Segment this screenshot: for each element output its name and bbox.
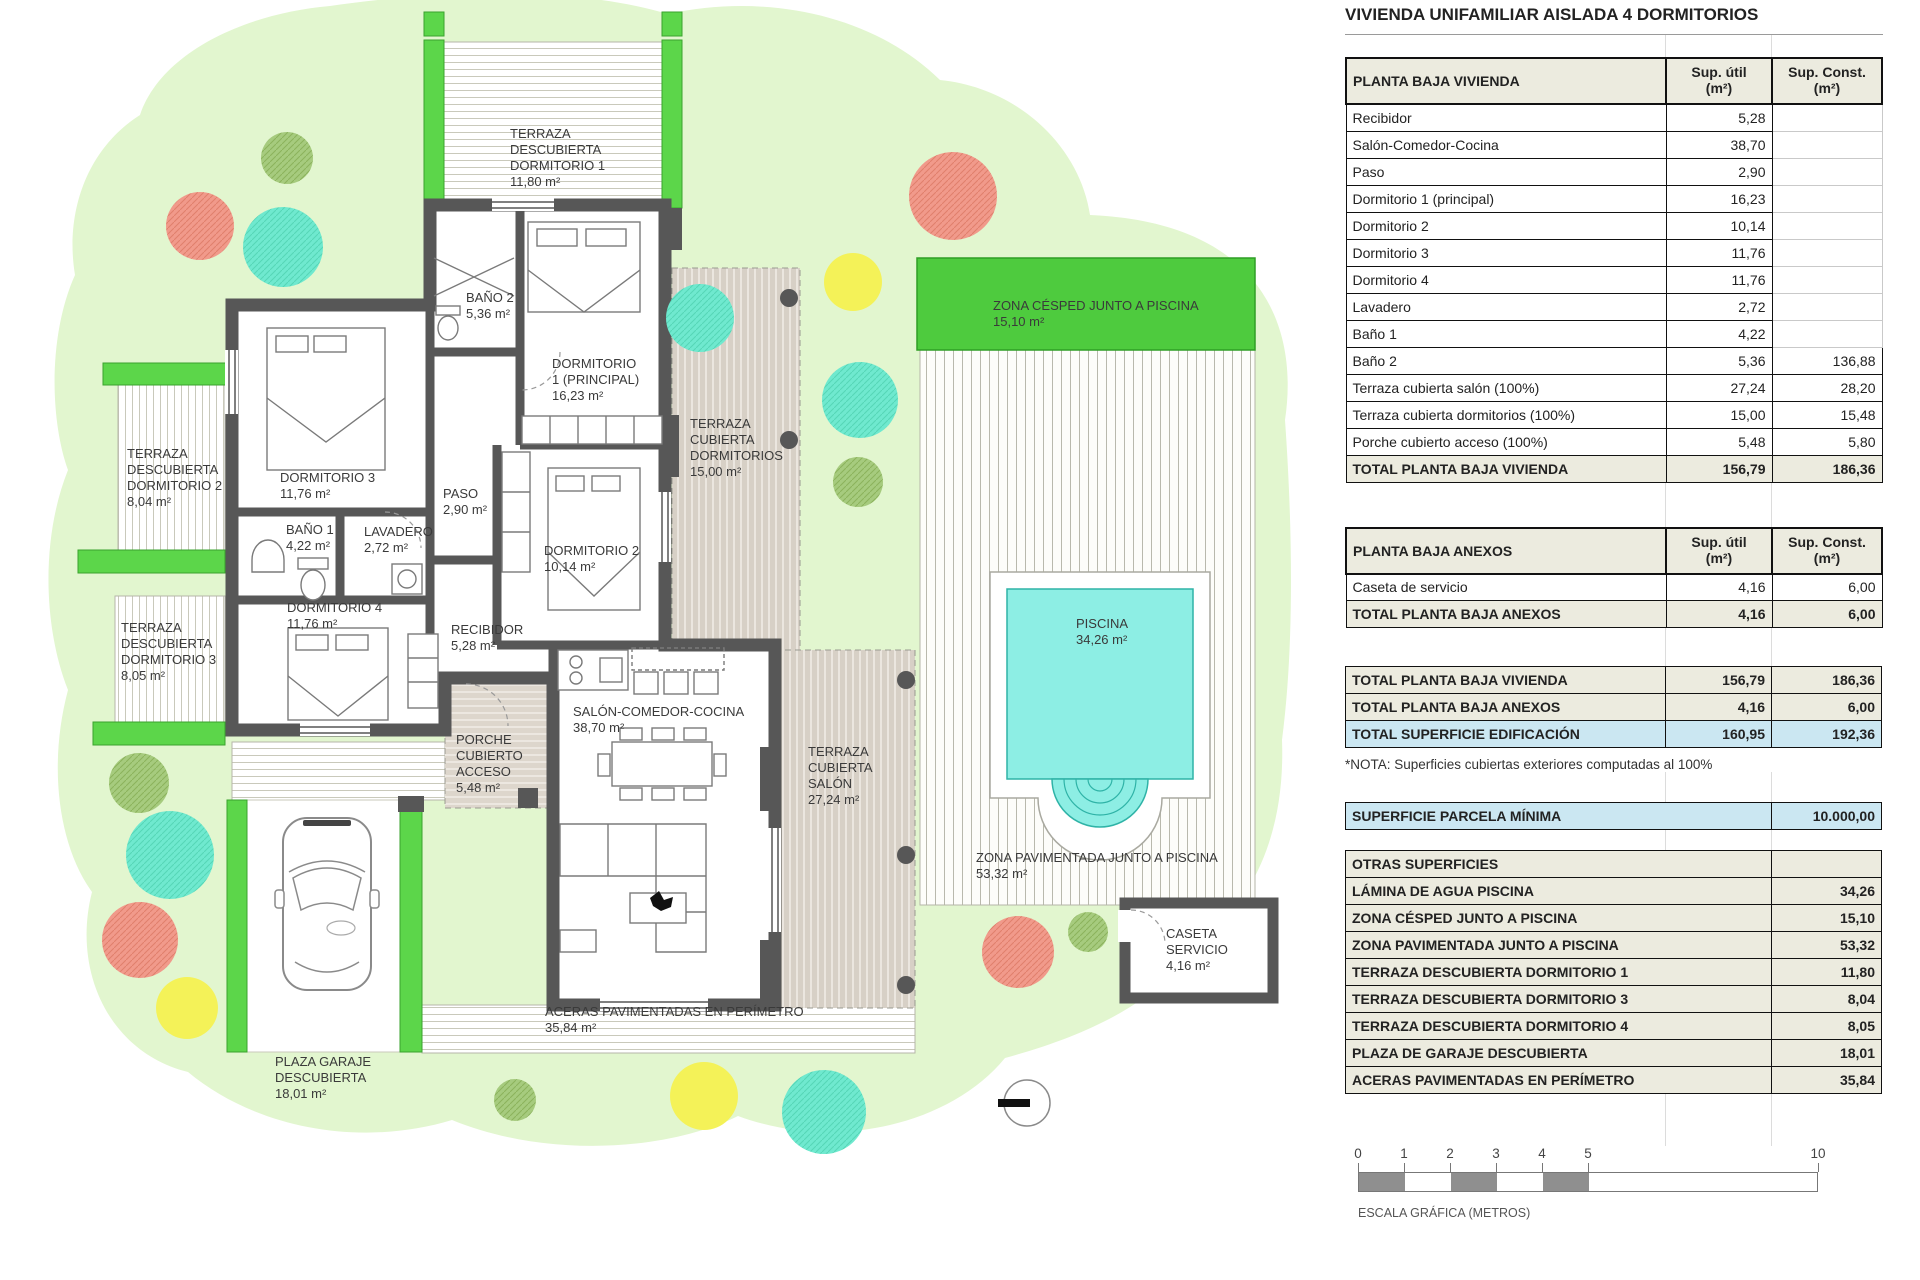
site-marker-icon [998,1080,1050,1126]
table-row: Baño 14,22 [1346,320,1882,347]
spacer [1345,35,1881,57]
table-grand-total-row: TOTAL SUPERFICIE EDIFICACIÓN160,95192,36 [1346,721,1882,748]
table-row: ZONA PAVIMENTADA JUNTO A PISCINA53,32 [1346,932,1882,959]
summary-panel: VIVIENDA UNIFAMILIAR AISLADA 4 DORMITORI… [1345,0,1885,1241]
table-header: PLANTA BAJA ANEXOS [1346,528,1666,574]
col-header-sup-const: Sup. Const. (m²) [1772,58,1882,104]
table-row: LÁMINA DE AGUA PISCINA34,26 [1346,878,1882,905]
table-row: Terraza cubierta salón (100%)27,2428,20 [1346,374,1882,401]
plan-label: SALÓN-COMEDOR-COCINA 38,70 m² [573,704,744,736]
table-header: PLANTA BAJA VIVIENDA [1346,58,1666,104]
scale-tick: 4 [1538,1146,1546,1161]
col-header-sup-util: Sup. útil (m²) [1666,58,1772,104]
plan-label: PASO 2,90 m² [443,486,487,518]
plan-label: DORMITORIO 2 10,14 m² [544,543,639,575]
plan-label: LAVADERO 2,72 m² [364,524,433,556]
table-header-row: OTRAS SUPERFICIES [1346,851,1882,878]
spacer [1345,628,1881,666]
plan-label: PLAZA GARAJE DESCUBIERTA 18,01 m² [275,1054,371,1102]
spacer [1345,1094,1881,1146]
table-row: Porche cubierto acceso (100%)5,485,80 [1346,428,1882,455]
car-icon [275,818,379,990]
table-total-row: TOTAL PLANTA BAJA VIVIENDA156,79186,36 [1346,667,1882,694]
table-row: Terraza cubierta dormitorios (100%)15,00… [1346,401,1882,428]
plan-label: TERRAZA DESCUBIERTA DORMITORIO 3 8,05 m² [121,620,216,684]
plan-label: DORMITORIO 1 (PRINCIPAL) 16,23 m² [552,356,639,404]
table-row: TERRAZA DESCUBIERTA DORMITORIO 38,04 [1346,986,1882,1013]
pool-zone [917,258,1255,905]
plan-label: TERRAZA DESCUBIERTA DORMITORIO 2 8,04 m² [127,446,222,510]
scale-bar: 0 1 2 3 4 5 10 ESCALA GRÁFICA (METROS) [1345,1146,1881,1241]
table-total-row: TOTAL PLANTA BAJA ANEXOS4,166,00 [1346,694,1882,721]
table-row: ZONA CÉSPED JUNTO A PISCINA15,10 [1346,905,1882,932]
plan-label: BAÑO 2 5,36 m² [466,290,514,322]
garage-plaza [227,796,424,1052]
scale-tick: 3 [1492,1146,1500,1161]
table-header: OTRAS SUPERFICIES [1346,851,1772,878]
scale-caption: ESCALA GRÁFICA (METROS) [1358,1206,1530,1220]
table-row: Caseta de servicio4,166,00 [1346,574,1882,601]
plan-label: TERRAZA CUBIERTA SALÓN 27,24 m² [808,744,873,808]
table-row: Lavadero2,72 [1346,293,1882,320]
table-row: Dormitorio 311,76 [1346,239,1882,266]
table-row: TERRAZA DESCUBIERTA DORMITORIO 48,05 [1346,1013,1882,1040]
table-row: Recibidor5,28 [1346,104,1882,131]
table-parcela-minima: SUPERFICIE PARCELA MÍNIMA10.000,00 [1345,802,1882,830]
plan-label: TERRAZA DESCUBIERTA DORMITORIO 1 11,80 m… [510,126,605,190]
col-header-sup-const: Sup. Const. (m²) [1772,528,1882,574]
scale-bar-strip [1358,1172,1818,1192]
table-planta-baja-anexos: PLANTA BAJA ANEXOS Sup. útil (m²) Sup. C… [1345,527,1883,629]
table-otras-superficies: OTRAS SUPERFICIES LÁMINA DE AGUA PISCINA… [1345,850,1882,1094]
table-row: Dormitorio 1 (principal)16,23 [1346,185,1882,212]
table-row: Dormitorio 411,76 [1346,266,1882,293]
plan-label: ACERAS PAVIMENTADAS EN PERÍMETRO 35,84 m… [545,1004,804,1036]
table-planta-baja-vivienda: PLANTA BAJA VIVIENDA Sup. útil (m²) Sup.… [1345,57,1883,483]
scale-tick: 0 [1354,1146,1362,1161]
table-row: PLAZA DE GARAJE DESCUBIERTA18,01 [1346,1040,1882,1067]
plan-label: ZONA CÉSPED JUNTO A PISCINA 15,10 m² [993,298,1199,330]
spacer [1345,830,1881,850]
plan-label: DORMITORIO 4 11,76 m² [287,600,382,632]
scale-tick: 2 [1446,1146,1454,1161]
plan-label: PISCINA 34,26 m² [1076,616,1128,648]
table-row: TERRAZA DESCUBIERTA DORMITORIO 111,80 [1346,959,1882,986]
table-row: Dormitorio 210,14 [1346,212,1882,239]
scale-tick: 10 [1810,1146,1825,1161]
page-title: VIVIENDA UNIFAMILIAR AISLADA 4 DORMITORI… [1345,0,1883,35]
plan-label: ZONA PAVIMENTADA JUNTO A PISCINA 53,32 m… [976,850,1218,882]
table-row: ACERAS PAVIMENTADAS EN PERÍMETRO35,84 [1346,1067,1882,1094]
scale-tick: 5 [1584,1146,1592,1161]
table-total-row: TOTAL PLANTA BAJA VIVIENDA156,79186,36 [1346,455,1882,482]
spacer [1345,483,1881,527]
floor-plan-sheet: TERRAZA DESCUBIERTA DORMITORIO 1 11,80 m… [0,0,1920,1280]
table-row: Paso2,90 [1346,158,1882,185]
table-row: SUPERFICIE PARCELA MÍNIMA10.000,00 [1346,803,1882,830]
plan-label: RECIBIDOR 5,28 m² [451,622,523,654]
spacer [1345,772,1881,802]
plan-label: DORMITORIO 3 11,76 m² [280,470,375,502]
plan-label: CASETA SERVICIO 4,16 m² [1166,926,1228,974]
col-header-sup-util: Sup. útil (m²) [1666,528,1772,574]
table-row: Salón-Comedor-Cocina38,70 [1346,131,1882,158]
plan-label: PORCHE CUBIERTO ACCESO 5,48 m² [456,732,523,796]
table-header-row: PLANTA BAJA VIVIENDA Sup. útil (m²) Sup.… [1346,58,1882,104]
table-total-row: TOTAL PLANTA BAJA ANEXOS4,166,00 [1346,601,1882,628]
nota-text: *NOTA: Superficies cubiertas exteriores … [1345,757,1881,772]
table-row: Baño 25,36136,88 [1346,347,1882,374]
table-resumen: TOTAL PLANTA BAJA VIVIENDA156,79186,36 T… [1345,666,1882,748]
site-plan: TERRAZA DESCUBIERTA DORMITORIO 1 11,80 m… [0,0,1345,1280]
table-header-row: PLANTA BAJA ANEXOS Sup. útil (m²) Sup. C… [1346,528,1882,574]
scale-tick: 1 [1400,1146,1408,1161]
plan-label: BAÑO 1 4,22 m² [286,522,334,554]
plan-label: TERRAZA CUBIERTA DORMITORIOS 15,00 m² [690,416,783,480]
